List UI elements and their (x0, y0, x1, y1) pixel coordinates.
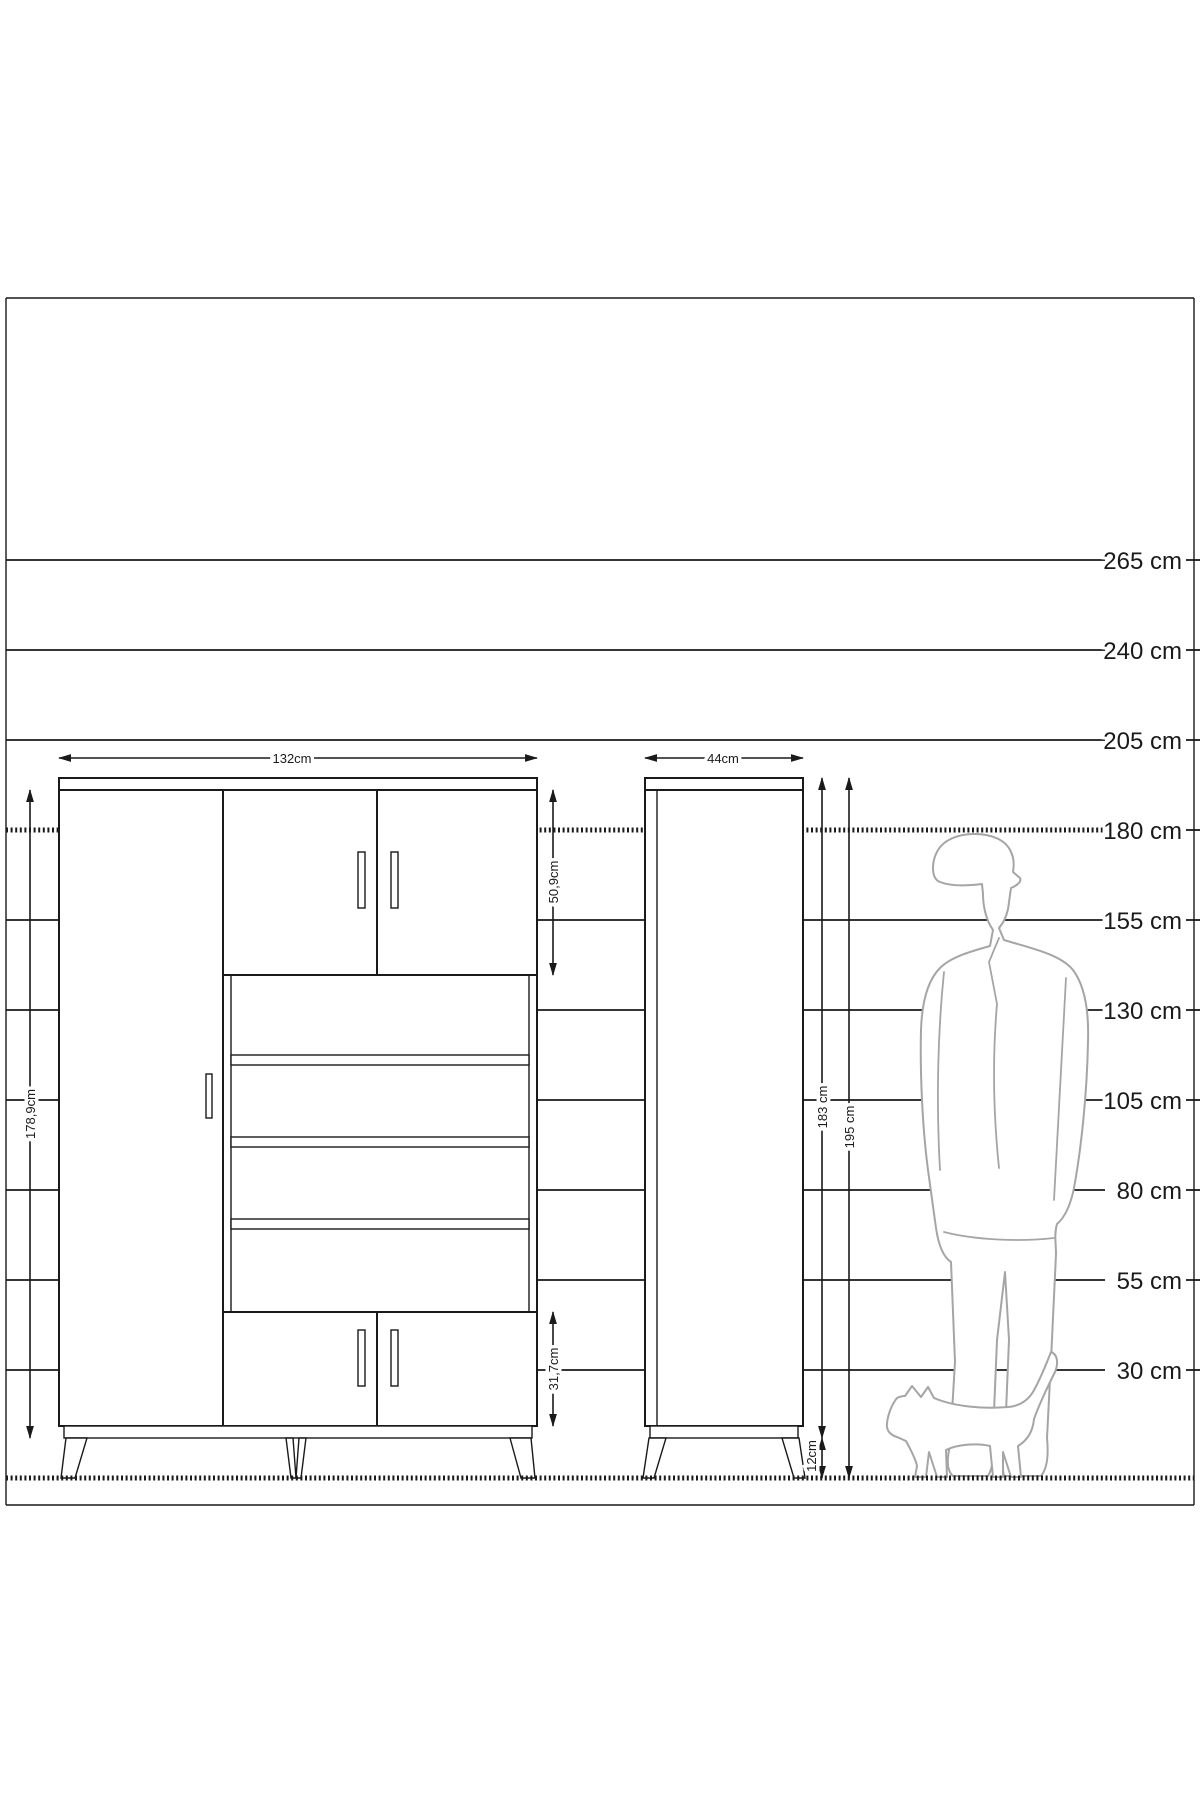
shelf-1 (231, 1055, 529, 1065)
height-label-80-cm: 80 cm (1117, 1178, 1182, 1205)
front-leg-middle-b (296, 1438, 306, 1478)
height-label-155-cm: 155 cm (1103, 908, 1182, 935)
height-label-30-cm: 30 cm (1117, 1358, 1182, 1385)
left-door-handle (206, 1074, 212, 1118)
diagram-canvas: 265 cm240 cm205 cm180 cm155 cm130 cm105 … (0, 0, 1200, 1800)
man-silhouette (921, 834, 1088, 1476)
total-height-label: 195 cm (842, 1106, 857, 1149)
height-label-240-cm: 240 cm (1103, 638, 1182, 665)
height-label-265-cm: 265 cm (1103, 548, 1182, 575)
height-label-55-cm: 55 cm (1117, 1268, 1182, 1295)
side-body (645, 778, 803, 1426)
front-base-strip (64, 1426, 532, 1438)
front-leg-middle-a (286, 1438, 296, 1478)
shelf-2 (231, 1137, 529, 1147)
side-leg-front (643, 1438, 666, 1478)
height-label-130-cm: 130 cm (1103, 998, 1182, 1025)
bottom-left-door-handle (358, 1330, 365, 1386)
front-leg-left (61, 1438, 87, 1478)
height-label-205-cm: 205 cm (1103, 728, 1182, 755)
side-base-strip (650, 1426, 798, 1438)
man-outline (921, 834, 1088, 1476)
body-height-label: 183 cm (815, 1086, 830, 1129)
front-body (59, 778, 537, 1426)
cabinet-front-view (59, 778, 537, 1478)
height-label-105-cm: 105 cm (1103, 1088, 1182, 1115)
top-left-door-handle (358, 852, 365, 908)
front-height-label: 178,9cm (23, 1089, 38, 1139)
cabinet-side-view (643, 778, 805, 1478)
bottom-doors-height-label: 31,7cm (546, 1348, 561, 1391)
shelf-3 (231, 1219, 529, 1229)
top-doors-height-label: 50,9cm (546, 861, 561, 904)
bottom-right-door-handle (391, 1330, 398, 1386)
height-label-180-cm: 180 cm (1103, 818, 1182, 845)
front-width-label: 132cm (272, 751, 311, 766)
leg-height-label: 12cm (804, 1440, 819, 1472)
front-leg-right (510, 1438, 535, 1478)
side-depth-label: 44cm (707, 751, 739, 766)
top-right-door-handle (391, 852, 398, 908)
side-leg-back (782, 1438, 805, 1478)
